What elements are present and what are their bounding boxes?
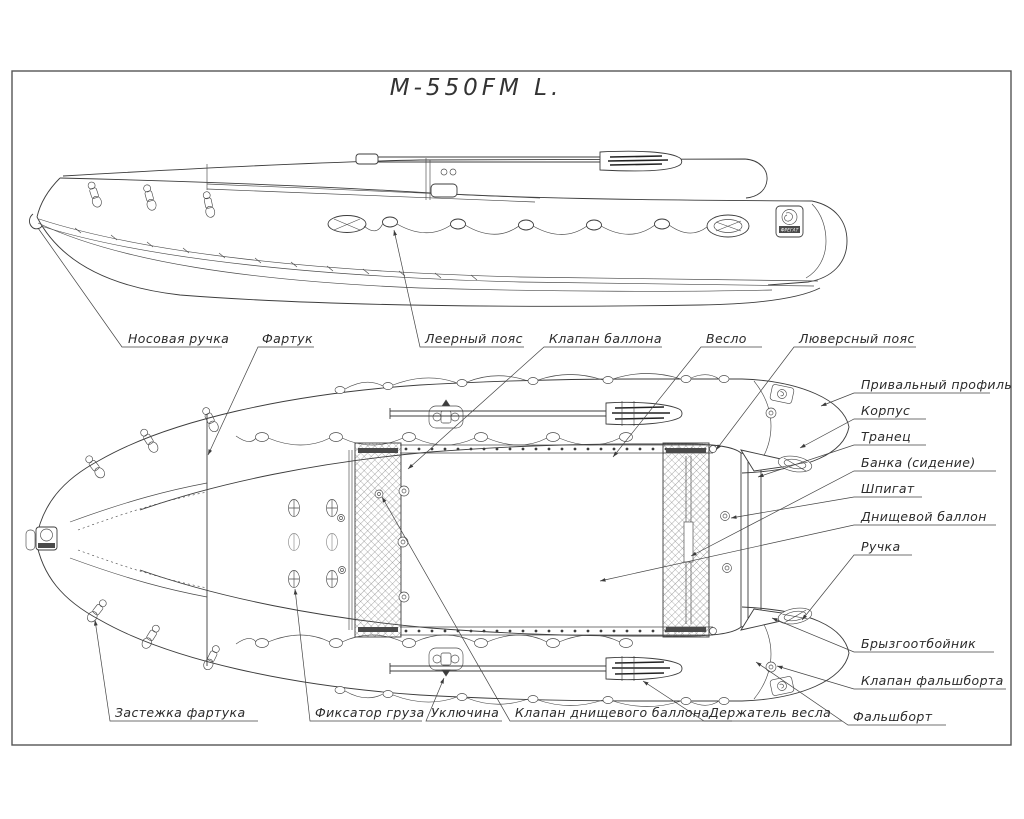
label-apron: Фартук <box>262 331 313 346</box>
bow-dring-fittings <box>86 181 216 218</box>
label-hull: Корпус <box>861 403 910 418</box>
cargo-straps <box>289 500 346 588</box>
label-oar: Весло <box>706 331 747 346</box>
brand-logo: ФРЕГАТ <box>776 206 803 237</box>
label-bulwark: Фальшборт <box>853 709 933 724</box>
side-nose-handle <box>29 214 42 229</box>
brand-logo-text: ФРЕГАТ <box>781 228 800 234</box>
bow-logo <box>36 527 57 550</box>
inner-leer-upper <box>236 433 633 446</box>
label-handle: Ручка <box>861 539 901 554</box>
side-oar-grip <box>356 154 378 164</box>
side-leer-belt <box>364 217 707 235</box>
label-apron-fastener: Застежка фартука <box>115 705 246 720</box>
side-rowlock-pin <box>441 169 447 175</box>
label-oar-holder: Держатель весла <box>708 705 831 720</box>
stern-handle-lower <box>777 606 813 627</box>
boat-diagram-page: М-550FM L. <box>0 0 1024 819</box>
bow-tip-handle <box>26 530 35 550</box>
label-bulwark-valve: Клапан фальшборта <box>861 673 1004 688</box>
outer-leer-upper <box>335 374 729 394</box>
label-tube-valve: Клапан баллона <box>549 331 662 346</box>
side-view: ФРЕГАТ <box>29 151 847 306</box>
seat-bow <box>349 443 409 637</box>
label-spray-guard: Брызгоотбойник <box>861 636 976 651</box>
side-rowlock <box>431 184 457 197</box>
cone-logo-upper <box>770 384 795 404</box>
stern-handle-upper <box>777 454 813 475</box>
outer-leer-lower <box>335 687 729 707</box>
plan-dring-fittings <box>84 406 222 671</box>
label-seat: Банка (сидение) <box>861 455 976 470</box>
label-leer-belt: Леерный пояс <box>424 331 523 346</box>
label-nose-handle: Носовая ручка <box>128 331 229 346</box>
drawing-title: М-550FM L. <box>390 75 563 101</box>
inner-leer-lower <box>236 635 633 648</box>
label-floor-tube: Днищевой баллон <box>860 509 987 524</box>
apron <box>70 414 207 666</box>
label-rub-profile: Привальный профиль <box>861 377 1012 392</box>
label-transom: Транец <box>861 429 911 444</box>
rowlock-lower <box>429 648 463 676</box>
label-floor-valve: Клапан днищевого баллона <box>515 705 710 720</box>
label-rowlock: Уключина <box>431 705 499 720</box>
labels: Носовая ручка Фартук Леерный пояс Клапан… <box>115 331 1012 724</box>
label-drain: Шпигат <box>861 481 915 496</box>
label-cargo-fixer: Фиксатор груза <box>315 705 425 720</box>
boat-diagram: М-550FM L. <box>0 0 1024 819</box>
top-view <box>26 374 849 707</box>
side-handle-patch <box>328 216 366 233</box>
label-grommet-belt: Люверсный пояс <box>798 331 915 346</box>
